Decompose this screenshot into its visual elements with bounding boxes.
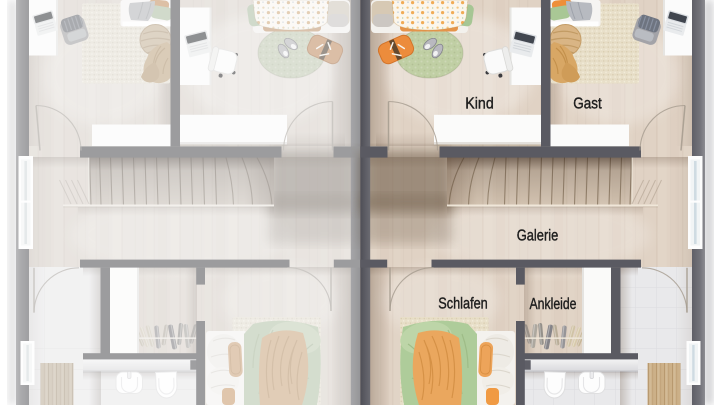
svg-text:Kind: Kind: [465, 95, 494, 112]
svg-text:Schlafen: Schlafen: [438, 296, 488, 313]
svg-text:Ankleide: Ankleide: [530, 296, 577, 313]
svg-text:Galerie: Galerie: [517, 228, 559, 245]
svg-text:Gast: Gast: [573, 95, 602, 112]
